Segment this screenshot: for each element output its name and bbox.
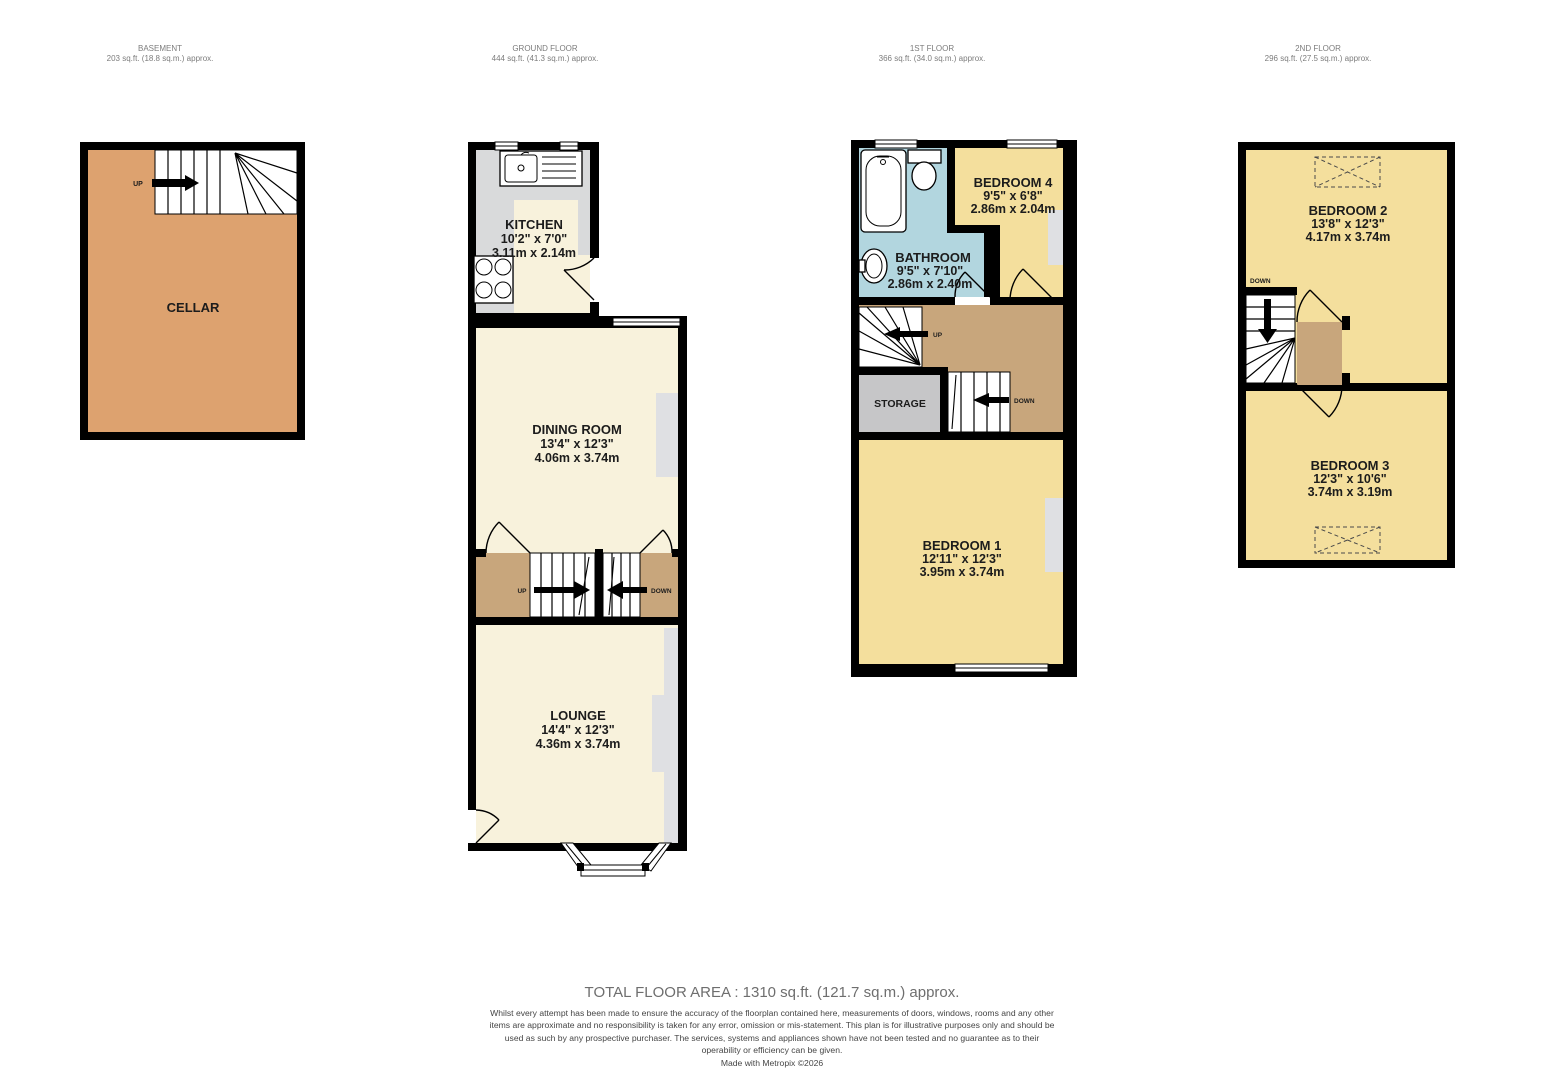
first-up-label: UP [933,332,943,339]
bedroom4-metric: 2.86m x 2.04m [971,202,1056,216]
bedroom2-imperial: 13'8" x 12'3" [1311,217,1384,231]
second-header: 2ND FLOOR 296 sq.ft. (27.5 sq.m.) approx… [1158,44,1478,63]
bathtub-icon [861,150,906,232]
bedroom3-label: BEDROOM 3 [1311,458,1390,473]
bathroom-imperial: 9'5" x 7'10" [897,264,964,278]
landing-left [476,553,530,617]
basement-stairs [152,150,297,214]
bedroom1-label: BEDROOM 1 [923,538,1002,553]
first-down-label: DOWN [1014,398,1035,405]
basement-plan: UP CELLAR [70,135,315,450]
cellar-label: CELLAR [167,300,220,315]
second-floor-landing [1297,322,1342,385]
lounge-imperial: 14'4" x 12'3" [541,723,614,737]
bedroom4-label: BEDROOM 4 [974,175,1054,190]
dining-label: DINING ROOM [532,422,622,437]
second-title: 2ND FLOOR [1158,44,1478,54]
second-floor-plan: DOWN BEDROOM 2 13'8" x 12'3" 4.17m x 3.7… [1230,135,1470,580]
bedroom4-recess [1048,210,1063,265]
first-title: 1ST FLOOR [772,44,1092,54]
first-area: 366 sq.ft. (34.0 sq.m.) approx. [772,54,1092,64]
dining-imperial: 13'4" x 12'3" [540,437,613,451]
second-floor-stairs [1246,295,1295,383]
bathroom-door-opening [955,297,990,305]
lounge-recess [652,695,678,772]
basement-up-label: UP [133,181,143,188]
kitchen-imperial: 10'2" x 7'0" [501,232,568,246]
kitchen-dining-wall [468,313,545,321]
second-area: 296 sq.ft. (27.5 sq.m.) approx. [1158,54,1478,64]
kitchen-label: KITCHEN [505,217,563,232]
up-arrow [534,587,574,593]
lounge-metric: 4.36m x 3.74m [536,737,621,751]
ground-header: GROUND FLOOR 444 sq.ft. (41.3 sq.m.) app… [385,44,705,63]
kitchen-metric: 3.11m x 2.14m [492,246,576,260]
basement-title: BASEMENT [0,44,320,54]
dining-recess [656,393,678,477]
basement-area: 203 sq.ft. (18.8 sq.m.) approx. [0,54,320,64]
bedroom1-imperial: 12'11" x 12'3" [922,552,1002,566]
bedroom4-imperial: 9'5" x 6'8" [983,189,1043,203]
basement-header: BASEMENT 203 sq.ft. (18.8 sq.m.) approx. [0,44,320,63]
up-arrow [152,179,185,187]
metropix-credit: Made with Metropix ©2026 [0,1057,1544,1069]
ground-up-label: UP [517,588,527,595]
bedroom2-label: BEDROOM 2 [1309,203,1388,218]
footer: TOTAL FLOOR AREA : 1310 sq.ft. (121.7 sq… [0,984,1544,1069]
first-floor-stairs-down [948,372,1010,432]
bedroom3-metric: 3.74m x 3.19m [1308,485,1393,499]
first-header: 1ST FLOOR 366 sq.ft. (34.0 sq.m.) approx… [772,44,1092,63]
first-floor-stairs-up [859,307,928,367]
ground-down-label: DOWN [651,588,672,595]
total-floor-area: TOTAL FLOOR AREA : 1310 sq.ft. (121.7 sq… [0,984,1544,1001]
dining-metric: 4.06m x 3.74m [535,451,620,465]
kitchen-back-door-opening [590,258,599,302]
lounge-label: LOUNGE [550,708,606,723]
storage-label: STORAGE [874,398,926,410]
bathroom-metric: 2.86m x 2.40m [888,277,973,291]
stair-divider-wall [595,549,603,625]
sink-icon [500,151,582,186]
ground-title: GROUND FLOOR [385,44,705,54]
bedroom1-metric: 3.95m x 3.74m [920,565,1005,579]
hob-icon [474,256,513,303]
bedroom2-metric: 4.17m x 3.74m [1306,230,1391,244]
first-floor-plan: UP STORAGE DOWN BED [845,135,1085,680]
disclaimer-text: Whilst every attempt has been made to en… [490,1007,1055,1057]
bedroom1-recess [1045,498,1063,572]
landing-right [640,553,678,617]
floorplan-page: BASEMENT 203 sq.ft. (18.8 sq.m.) approx.… [0,0,1544,1080]
second-down-label: DOWN [1250,278,1271,285]
bedroom3-imperial: 12'3" x 10'6" [1313,472,1386,486]
lounge-side-door-opening [468,810,476,843]
bathroom-label: BATHROOM [895,250,971,265]
ground-floor-plan: UP DOWN KITCHEN 10'2" x 7'0" 3.11m x [460,137,700,885]
ground-area: 444 sq.ft. (41.3 sq.m.) approx. [385,54,705,64]
down-arrow [1264,299,1271,329]
